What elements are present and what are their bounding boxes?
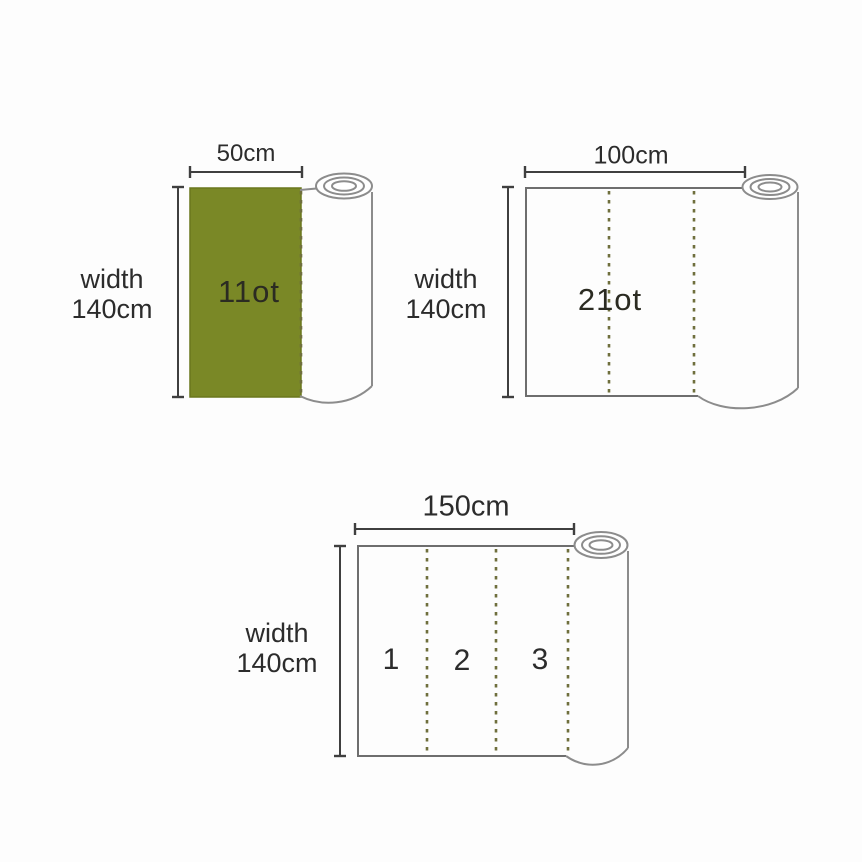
roll2-width-word: width [405, 264, 486, 294]
roll1-width-value: 140cm [71, 294, 152, 324]
roll1-body-bottom-curve [300, 386, 372, 403]
roll1-width-word: width [71, 264, 152, 294]
roll2-width-label: width 140cm [405, 264, 486, 324]
roll2-group [502, 166, 798, 408]
roll3-width-label: width 140cm [236, 618, 317, 678]
roll3-width-value: 140cm [236, 648, 317, 678]
roll3-group [334, 523, 628, 765]
roll2-length-label: 100cm [593, 142, 668, 171]
roll3-section-2-label: 2 [454, 644, 471, 678]
fabric-cutting-diagram: 50cm width 140cm 11ot 100cm width 140cm … [0, 0, 862, 862]
roll3-section-3-label: 3 [532, 643, 549, 677]
roll3-body-bottom-curve [566, 748, 628, 765]
diagram-shapes-canvas [0, 0, 862, 862]
roll1-lot-label: 11ot [218, 274, 280, 310]
roll1-length-label: 50cm [217, 140, 276, 168]
roll3-length-label: 150cm [422, 491, 509, 524]
roll1-width-label: width 140cm [71, 264, 152, 324]
roll2-body-bottom-curve [698, 388, 798, 408]
roll3-section-1-label: 1 [383, 643, 400, 677]
roll2-lot-label: 21ot [578, 282, 642, 318]
roll3-width-word: width [236, 618, 317, 648]
roll2-width-value: 140cm [405, 294, 486, 324]
